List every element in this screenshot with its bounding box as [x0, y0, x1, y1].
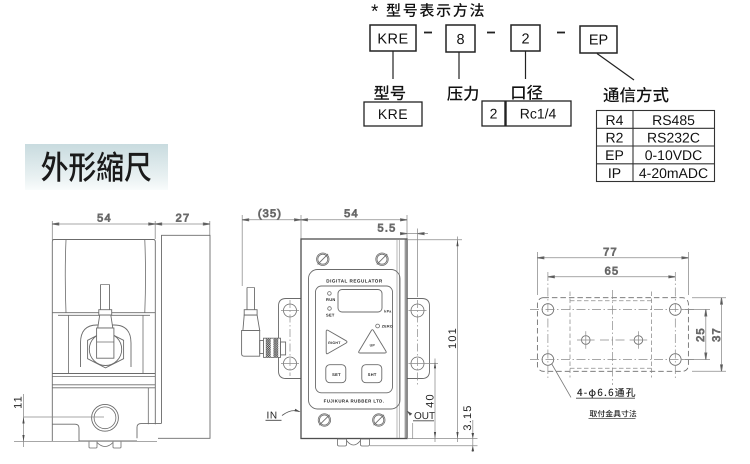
svg-text:25: 25	[695, 327, 707, 342]
svg-text:R2: R2	[606, 130, 624, 146]
svg-text:SET: SET	[326, 312, 335, 317]
svg-text:2: 2	[521, 32, 529, 48]
svg-text:R4: R4	[606, 112, 624, 128]
svg-text:SHT: SHT	[368, 372, 377, 377]
svg-text:FUJIKURA RUBBER LTD.: FUJIKURA RUBBER LTD.	[324, 399, 385, 404]
svg-text:77: 77	[603, 246, 618, 258]
svg-text:(35): (35)	[258, 208, 282, 220]
svg-text:3.15: 3.15	[462, 404, 474, 430]
svg-text:SET: SET	[332, 372, 341, 377]
svg-text:KRE: KRE	[377, 32, 408, 48]
svg-text:RS485: RS485	[652, 112, 695, 128]
svg-text:0-10VDC: 0-10VDC	[645, 147, 703, 163]
svg-text:RUN: RUN	[326, 297, 336, 302]
svg-text:40: 40	[425, 393, 437, 408]
svg-text:EP: EP	[589, 33, 608, 49]
svg-text:RS232C: RS232C	[647, 130, 700, 146]
svg-text:27: 27	[176, 213, 191, 225]
svg-text:54: 54	[97, 213, 112, 225]
svg-text:Rc1/4: Rc1/4	[520, 106, 557, 122]
svg-text:UP: UP	[370, 344, 376, 348]
svg-text:65: 65	[605, 265, 620, 277]
svg-text:RIGHT: RIGHT	[328, 341, 341, 345]
svg-text:101: 101	[447, 327, 459, 349]
svg-text:2: 2	[490, 106, 498, 122]
svg-text:11: 11	[12, 395, 24, 409]
svg-text:8: 8	[456, 32, 464, 48]
svg-text:DIGITAL REGULATOR: DIGITAL REGULATOR	[326, 279, 383, 284]
svg-text:ZERO: ZERO	[382, 325, 393, 329]
svg-text:*: *	[371, 2, 379, 23]
svg-text:54: 54	[344, 208, 359, 220]
svg-text:4-20mADC: 4-20mADC	[639, 165, 708, 181]
svg-text:IN: IN	[267, 410, 278, 421]
svg-text:5.5: 5.5	[378, 223, 397, 235]
svg-text:EP: EP	[605, 147, 624, 163]
svg-text:kPa: kPa	[384, 310, 392, 314]
svg-text:KRE: KRE	[378, 106, 408, 122]
svg-text:IP: IP	[608, 165, 621, 181]
svg-text:37: 37	[711, 327, 723, 342]
